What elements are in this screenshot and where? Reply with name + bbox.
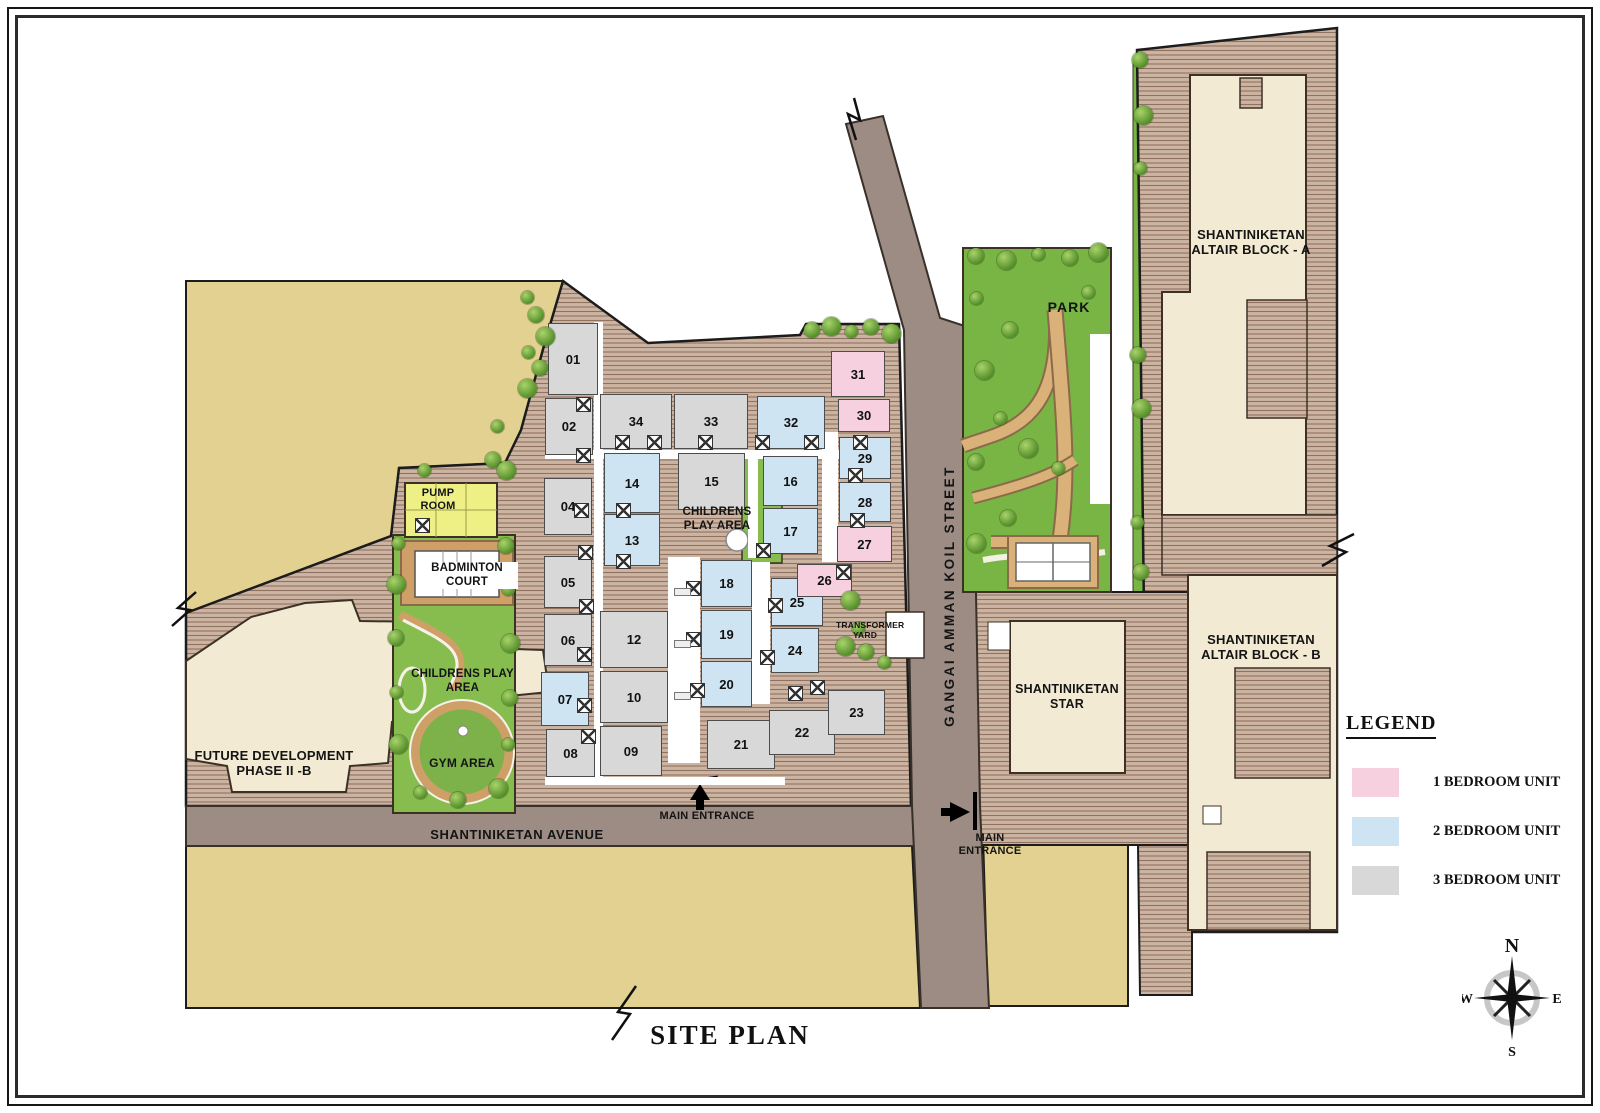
legend-swatch-icon	[1352, 768, 1399, 797]
badminton-court-label: BADMINTON COURT	[416, 562, 518, 589]
unit-number: 17	[783, 524, 797, 539]
tree-icon	[1134, 162, 1147, 175]
tree-icon	[1133, 564, 1149, 580]
tree-icon	[968, 248, 984, 264]
pump-room-label: PUMP ROOM	[409, 487, 467, 513]
stair-elevator-icon	[690, 683, 705, 698]
tree-icon	[387, 575, 406, 594]
tree-icon	[1132, 399, 1151, 418]
main-entrance-east-label: MAIN ENTRANCE	[944, 832, 1036, 858]
tree-icon	[502, 738, 515, 751]
play-area-west-label: CHILDRENS PLAY AREA	[405, 668, 520, 695]
stair-elevator-icon	[804, 435, 819, 450]
legend-item-label: 1 BEDROOM UNIT	[1433, 774, 1560, 791]
play-area-center-label: CHILDRENS PLAY AREA	[666, 506, 768, 533]
tree-icon	[1000, 510, 1016, 526]
stair-elevator-icon	[760, 650, 775, 665]
tree-icon	[1032, 248, 1045, 261]
tree-icon	[1131, 516, 1144, 529]
stair-elevator-icon	[579, 599, 594, 614]
unit-14: 14	[604, 453, 660, 513]
tree-icon	[1132, 52, 1148, 68]
stair-elevator-icon	[788, 686, 803, 701]
unit-number: 27	[857, 537, 871, 552]
unit-number: 14	[625, 476, 639, 491]
tree-icon	[389, 735, 408, 754]
site-plan-page: 0102040506070834141312100933151819202132…	[0, 0, 1600, 1113]
tree-icon	[390, 686, 403, 699]
unit-number: 07	[558, 692, 572, 707]
legend-items: 1 BEDROOM UNIT2 BEDROOM UNIT3 BEDROOM UN…	[1340, 767, 1570, 895]
tree-icon	[997, 251, 1016, 270]
unit-number: 26	[817, 573, 831, 588]
unit-number: 33	[704, 414, 718, 429]
tree-icon	[501, 634, 520, 653]
unit-number: 12	[627, 632, 641, 647]
unit-number: 01	[566, 352, 580, 367]
unit-number: 31	[851, 367, 865, 382]
unit-number: 20	[719, 677, 733, 692]
stair-elevator-icon	[615, 435, 630, 450]
tree-icon	[518, 379, 537, 398]
walkway	[822, 432, 838, 562]
stair-elevator-icon	[810, 680, 825, 695]
tree-icon	[968, 454, 984, 470]
unit-number: 32	[784, 415, 798, 430]
unit-number: 19	[719, 627, 733, 642]
stair-elevator-icon	[768, 598, 783, 613]
compass-south-text: S	[1508, 1045, 1516, 1058]
stair-elevator-icon	[574, 503, 589, 518]
unit-20: 20	[701, 661, 752, 707]
stair-elevator-icon	[578, 545, 593, 560]
walkway	[545, 777, 785, 785]
tree-icon	[878, 656, 891, 669]
unit-number: 21	[734, 737, 748, 752]
unit-number: 10	[627, 690, 641, 705]
unit-number: 08	[563, 746, 577, 761]
tree-icon	[882, 324, 901, 343]
legend-swatch-icon	[1352, 817, 1399, 846]
unit-number: 09	[624, 744, 638, 759]
tree-icon	[536, 327, 555, 346]
tree-icon	[970, 292, 983, 305]
unit-number: 05	[561, 575, 575, 590]
unit-24: 24	[771, 628, 819, 673]
main-entrance-south-label: MAIN ENTRANCE	[648, 810, 766, 823]
stair-elevator-icon	[415, 518, 430, 533]
legend-swatch-icon	[1352, 866, 1399, 895]
legend-item: 1 BEDROOM UNIT	[1340, 767, 1570, 797]
tree-icon	[1089, 243, 1108, 262]
tree-icon	[841, 591, 860, 610]
altair-block-a-label: SHANTINIKETAN ALTAIR BLOCK - A	[1185, 227, 1317, 258]
stair-elevator-icon	[616, 554, 631, 569]
unit-23: 23	[828, 690, 885, 735]
unit-number: 30	[857, 408, 871, 423]
tree-icon	[418, 464, 431, 477]
unit-number: 02	[562, 419, 576, 434]
tree-icon	[414, 786, 427, 799]
stair-elevator-icon	[698, 435, 713, 450]
stair-elevator-icon	[616, 503, 631, 518]
tree-icon	[975, 361, 994, 380]
unit-31: 31	[831, 351, 885, 397]
tree-icon	[858, 644, 874, 660]
unit-19: 19	[701, 610, 752, 659]
tree-icon	[1062, 250, 1078, 266]
page-title: SITE PLAN	[560, 1020, 900, 1051]
unit-16: 16	[763, 456, 818, 506]
avenue-street-label: SHANTINIKETAN AVENUE	[406, 827, 628, 842]
compass-rose-icon: N S W E	[1462, 938, 1562, 1058]
tree-icon	[489, 779, 508, 798]
tree-icon	[1082, 286, 1095, 299]
unit-number: 34	[629, 414, 643, 429]
unit-13: 13	[604, 514, 660, 566]
unit-09: 09	[600, 726, 662, 776]
path-marker-icon	[674, 692, 691, 700]
unit-number: 06	[561, 633, 575, 648]
tree-icon	[528, 307, 544, 323]
tree-icon	[1052, 462, 1065, 475]
tree-icon	[863, 319, 879, 335]
stair-elevator-icon	[850, 513, 865, 528]
stair-elevator-icon	[577, 698, 592, 713]
unit-27: 27	[837, 526, 892, 562]
compass-east-text: E	[1552, 992, 1561, 1007]
unit-number: 18	[719, 576, 733, 591]
legend: LEGEND 1 BEDROOM UNIT2 BEDROOM UNIT3 BED…	[1340, 712, 1570, 914]
legend-item-label: 2 BEDROOM UNIT	[1433, 823, 1560, 840]
unit-30: 30	[838, 399, 890, 432]
tree-icon	[491, 420, 504, 433]
unit-15: 15	[678, 453, 745, 510]
tree-icon	[498, 538, 514, 554]
tree-icon	[522, 346, 535, 359]
tree-icon	[967, 534, 986, 553]
stair-elevator-icon	[848, 468, 863, 483]
park-label: PARK	[1038, 299, 1100, 316]
tree-icon	[994, 412, 1007, 425]
site-ground-drawing	[0, 0, 1600, 1113]
tree-icon	[845, 325, 858, 338]
unit-number: 23	[849, 705, 863, 720]
unit-number: 28	[858, 495, 872, 510]
stair-elevator-icon	[576, 397, 591, 412]
unit-number: 16	[783, 474, 797, 489]
stair-elevator-icon	[836, 565, 851, 580]
tree-icon	[1002, 322, 1018, 338]
compass-west-text: W	[1462, 992, 1473, 1007]
tree-icon	[822, 317, 841, 336]
gym-area-label: GYM AREA	[416, 756, 508, 770]
unit-number: 22	[795, 725, 809, 740]
transformer-yard-label: TRANSFORMER YARD	[836, 620, 894, 640]
stair-elevator-icon	[755, 435, 770, 450]
tree-icon	[804, 322, 820, 338]
tree-icon	[450, 792, 466, 808]
stair-elevator-icon	[581, 729, 596, 744]
future-development-label: FUTURE DEVELOPMENT PHASE II -B	[190, 748, 358, 779]
unit-10: 10	[600, 671, 668, 723]
legend-item-label: 3 BEDROOM UNIT	[1433, 872, 1560, 889]
tree-icon	[532, 360, 548, 376]
unit-12: 12	[600, 611, 668, 668]
tree-icon	[1134, 106, 1153, 125]
stair-elevator-icon	[647, 435, 662, 450]
stair-elevator-icon	[577, 647, 592, 662]
unit-number: 24	[788, 643, 802, 658]
stair-elevator-icon	[756, 543, 771, 558]
legend-item: 3 BEDROOM UNIT	[1340, 865, 1570, 895]
legend-heading: LEGEND	[1346, 712, 1436, 739]
unit-number: 13	[625, 533, 639, 548]
unit-28: 28	[839, 482, 891, 522]
unit-22: 22	[769, 710, 835, 755]
unit-number: 29	[858, 451, 872, 466]
altair-block-b-label: SHANTINIKETAN ALTAIR BLOCK - B	[1182, 632, 1340, 663]
walkway	[752, 562, 770, 704]
tree-icon	[392, 537, 405, 550]
shantiniketan-star-label: SHANTINIKETAN STAR	[1006, 682, 1128, 712]
tree-icon	[388, 630, 404, 646]
stair-elevator-icon	[853, 435, 868, 450]
legend-item: 2 BEDROOM UNIT	[1340, 816, 1570, 846]
unit-01: 01	[548, 323, 598, 395]
path-marker-icon	[674, 588, 691, 596]
path-marker-icon	[674, 640, 691, 648]
unit-18: 18	[701, 560, 752, 607]
unit-21: 21	[707, 720, 775, 769]
unit-17: 17	[763, 508, 818, 554]
tree-icon	[521, 291, 534, 304]
stair-elevator-icon	[576, 448, 591, 463]
unit-number: 15	[704, 474, 718, 489]
compass-north-text: N	[1505, 938, 1520, 957]
tree-icon	[497, 461, 516, 480]
tree-icon	[1130, 347, 1146, 363]
koil-street-label: GANGAI AMMAN KOIL STREET	[942, 326, 958, 866]
tree-icon	[1019, 439, 1038, 458]
